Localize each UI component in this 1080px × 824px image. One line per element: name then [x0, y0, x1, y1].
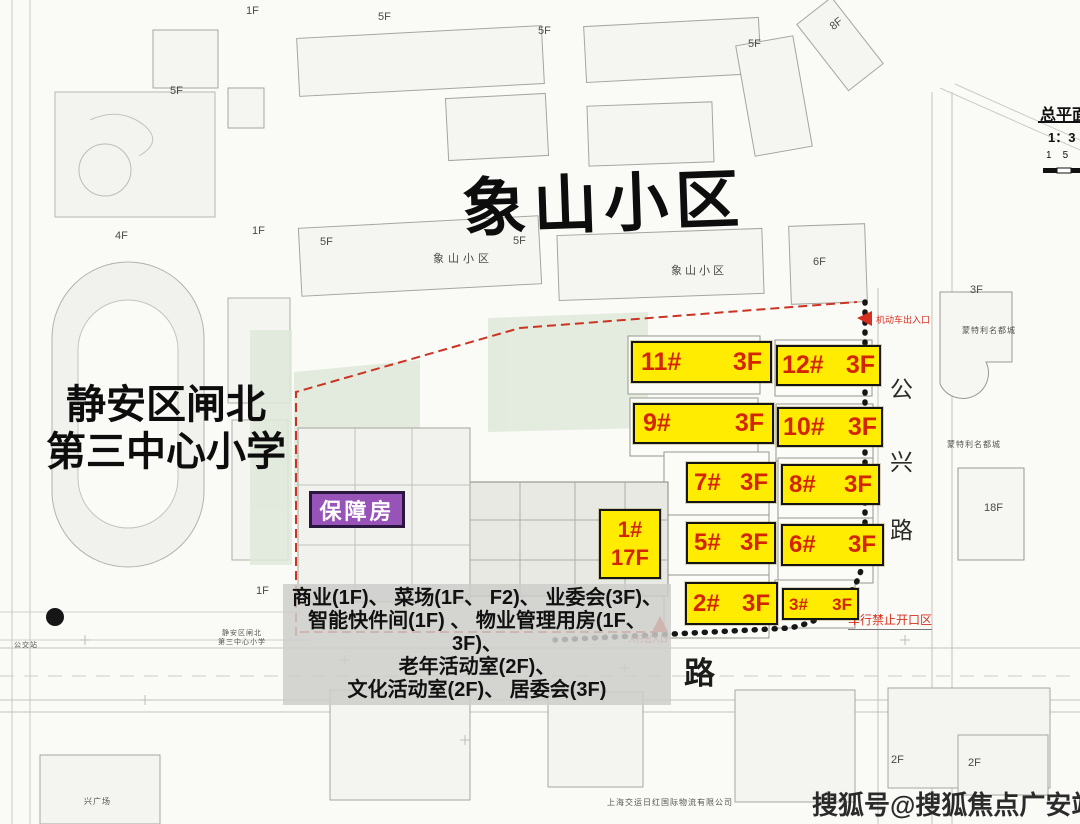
building-floors: 3F — [740, 471, 768, 495]
montery-label: 蒙特利名都城 — [962, 325, 1016, 336]
floor-tag: 1F — [246, 5, 259, 17]
vehicle-entrance-label: 机动车出入口 — [876, 313, 930, 326]
xiangshan-small-label: 象山小区 — [433, 250, 493, 266]
school-title: 静安区闸北 第三中心小学 — [28, 382, 304, 476]
building-label-5: 5# 3F — [686, 522, 776, 564]
building-number: 1# — [618, 519, 642, 541]
legend-scale-ticks: 1 5 — [1046, 150, 1068, 161]
building-floors: 3F — [733, 350, 762, 375]
floor-tag: 2F — [968, 757, 981, 769]
building-label-3: 3# 3F — [782, 588, 859, 620]
building-floors: 3F — [848, 415, 877, 440]
floor-tag: 1F — [256, 585, 269, 597]
logistics-company-label: 上海交运日红国际物流有限公司 — [607, 797, 733, 808]
floor-tag: 18F — [984, 502, 1003, 514]
road-name-bottom: 路 — [684, 648, 715, 693]
no-vehicle-opening-zone-label: 车行禁止开口区 — [848, 611, 932, 630]
road-name-gongxing-char3: 路 — [890, 511, 913, 545]
road-name-gongxing-char2: 兴 — [890, 443, 913, 477]
building-floors: 3F — [844, 473, 872, 497]
building-number: 12# — [782, 353, 824, 378]
floor-tag: 5F — [378, 11, 391, 23]
sohu-watermark: 搜狐号@搜狐焦点广安站 — [812, 785, 1080, 822]
legend-title: 总平面 — [1040, 101, 1080, 125]
building-label-9: 9# 3F — [633, 403, 774, 444]
building-floors: 3F — [742, 592, 770, 616]
floor-tag: 1F — [252, 225, 265, 237]
building-number: 5# — [694, 531, 721, 555]
building-floors: 3F — [832, 596, 852, 613]
building-label-1: 1# 17F — [599, 509, 661, 579]
building-number: 8# — [789, 473, 816, 497]
bus-stop-label: 公交站 — [14, 640, 38, 650]
building-label-10: 10# 3F — [777, 407, 883, 447]
building-label-12: 12# 3F — [776, 345, 881, 386]
building-label-6: 6# 3F — [781, 524, 884, 566]
plaza-label: 兴广场 — [84, 796, 111, 807]
montery-label: 蒙特利名都城 — [947, 439, 1001, 450]
floor-tag: 2F — [891, 754, 904, 766]
building-label-2: 2# 3F — [685, 582, 778, 625]
facilities-line: 老年活动室(2F)、 — [287, 656, 667, 679]
floor-tag: 5F — [748, 38, 761, 50]
main-title: 象山小区 — [460, 148, 747, 250]
facilities-panel: 商业(1F)、 菜场(1F、 F2)、 业委会(3F)、 智能快件间(1F) 、… — [283, 584, 671, 705]
building-floors: 3F — [846, 353, 875, 378]
facilities-line: 智能快件间(1F) 、 物业管理用房(1F、 3F)、 — [287, 610, 667, 656]
site-plan-image: 象山小区 静安区闸北 第三中心小学 保障房 11# 3F 12# 3F 9# 3… — [0, 0, 1080, 824]
facilities-line: 文化活动室(2F)、 居委会(3F) — [287, 679, 667, 702]
floor-tag: 4F — [115, 230, 128, 242]
building-number: 2# — [693, 592, 720, 616]
floor-tag: 6F — [813, 256, 826, 268]
building-label-11: 11# 3F — [631, 341, 772, 383]
floor-tag: 3F — [970, 284, 983, 296]
building-number: 3# — [789, 596, 808, 613]
building-number: 7# — [694, 471, 721, 495]
affordable-housing-badge: 保障房 — [309, 491, 405, 528]
building-number: 10# — [783, 415, 825, 440]
floor-tag: 5F — [170, 85, 183, 97]
school-title-line2: 第三中心小学 — [28, 429, 304, 476]
floor-tag: 5F — [320, 236, 333, 248]
legend-scale: 1：3 — [1048, 127, 1075, 146]
building-number: 9# — [643, 411, 671, 436]
building-floors: 3F — [740, 531, 768, 555]
facilities-line: 商业(1F)、 菜场(1F、 F2)、 业委会(3F)、 — [287, 587, 667, 610]
building-floors: 17F — [611, 547, 649, 569]
building-label-7: 7# 3F — [686, 462, 776, 503]
building-number: 6# — [789, 533, 816, 557]
building-floors: 3F — [848, 533, 876, 557]
building-number: 11# — [641, 350, 681, 375]
xiangshan-small-label: 象山小区 — [671, 262, 727, 278]
road-name-gongxing-char1: 公 — [890, 370, 913, 404]
building-label-8: 8# 3F — [781, 464, 880, 505]
school-small-label-line2: 第三中心小学 — [218, 637, 266, 647]
building-floors: 3F — [735, 411, 764, 436]
floor-tag: 5F — [538, 25, 551, 37]
school-title-line1: 静安区闸北 — [28, 382, 304, 429]
